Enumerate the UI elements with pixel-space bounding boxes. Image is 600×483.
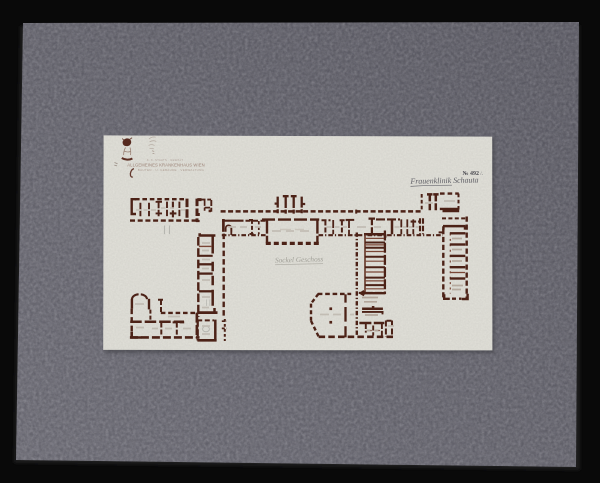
svg-text:Frauenklinik Schauta: Frauenklinik Schauta <box>409 175 478 185</box>
svg-text:Sockel Geschoss: Sockel Geschoss <box>275 254 324 264</box>
svg-text:BAUTEN · U. GEBÄUDE · VERWALTU: BAUTEN · U. GEBÄUDE · VERWALTUNG <box>138 168 205 172</box>
svg-text:ALLGEMEINES KRANKENHAUS WIEN: ALLGEMEINES KRANKENHAUS WIEN <box>127 162 205 167</box>
